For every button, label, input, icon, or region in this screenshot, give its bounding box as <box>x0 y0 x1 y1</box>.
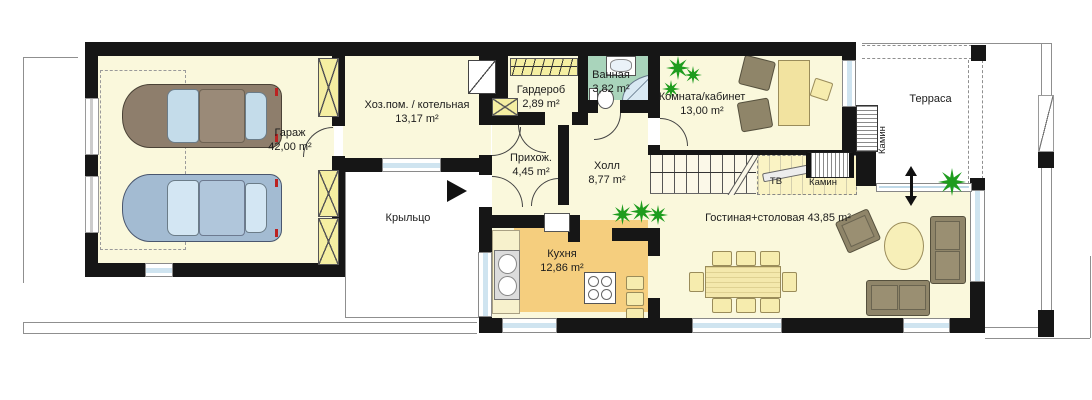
door-swing-arrow <box>904 166 918 206</box>
site-line-right <box>985 327 1038 328</box>
room-label-garage: Гараж 42,00 m² <box>240 126 340 155</box>
kitchen-sink <box>494 250 520 300</box>
porch-edge-left <box>345 170 346 318</box>
room-area: 12,86 m² <box>524 261 600 275</box>
car-taillight <box>275 179 278 187</box>
window-utility <box>382 158 441 172</box>
terrace-dashed-edge <box>968 60 969 184</box>
wall-kitchen-top <box>488 215 544 228</box>
room-area: 3,82 m² <box>582 82 640 96</box>
fireplace <box>806 152 854 178</box>
boiler <box>468 60 496 94</box>
room-area: 13,00 m² <box>656 104 748 118</box>
window-living-1 <box>692 318 782 333</box>
dining-chair <box>760 251 780 266</box>
terrace-dashed-edge <box>862 45 972 46</box>
entrance-arrow <box>447 180 467 202</box>
wall-bath-bottom <box>620 100 648 113</box>
vent-shaft <box>318 218 339 265</box>
dining-chair <box>760 298 780 313</box>
room-label-utility: Хоз.пом. / котельная 13,17 m² <box>352 98 482 127</box>
porch-edge-bottom <box>345 317 479 318</box>
dining-chair <box>736 251 756 266</box>
floor-plan: Гараж 42,00 m² Хоз.пом. / котельная 13,1… <box>0 0 1092 400</box>
plant-icon <box>684 66 702 84</box>
dining-chair <box>689 272 704 292</box>
cushion <box>899 285 926 310</box>
dining-chair <box>782 272 797 292</box>
chimney-label: Камин <box>877 126 888 154</box>
vent-shaft <box>318 58 339 117</box>
wall-garage-left <box>85 56 98 277</box>
terrace-top-line <box>862 43 1052 44</box>
car-taillight <box>275 88 278 96</box>
room-area: 4,45 m² <box>494 165 568 179</box>
room-area: 42,00 m² <box>240 140 340 154</box>
room-area: 2,89 m² <box>504 97 578 111</box>
room-name: Гараж <box>240 126 340 140</box>
room-area: 43,85 m² <box>807 212 850 224</box>
terrace-edge <box>1051 44 1052 95</box>
arrow-down <box>905 196 917 206</box>
plant-icon <box>938 168 966 196</box>
burner <box>601 289 612 300</box>
terrace-edge <box>1041 44 1042 95</box>
plant-icon <box>648 205 668 225</box>
room-name: Ванная <box>582 68 640 82</box>
room-name: Гостиная+столовая <box>705 212 804 224</box>
sofa-bottom <box>866 280 930 316</box>
fridge <box>544 213 570 232</box>
sink-basin <box>498 276 517 296</box>
sofa-right <box>930 216 966 284</box>
site-boundary-right <box>1090 256 1091 338</box>
site-boundary-left <box>23 57 24 283</box>
room-name: Терраса <box>909 93 951 105</box>
room-name: Крыльцо <box>386 212 431 224</box>
wall-entry-left <box>479 155 492 175</box>
burner <box>588 276 599 287</box>
cushion <box>935 221 960 250</box>
dining-chair <box>712 251 732 266</box>
room-name: Комната/кабинет <box>656 90 748 104</box>
room-label-porch: Крыльцо <box>368 212 448 224</box>
room-label-wardrobe: Гардероб 2,89 m² <box>504 83 578 112</box>
cushion <box>871 285 898 310</box>
wall-office-right <box>842 42 856 60</box>
car-roof <box>199 89 245 143</box>
room-label-kitchen: Кухня 12,86 m² <box>524 247 600 276</box>
cushion <box>935 251 960 280</box>
room-name: Кухня <box>524 247 600 261</box>
burner <box>601 276 612 287</box>
tv-label: ТВ <box>770 176 782 187</box>
walkway-cap <box>23 322 24 333</box>
car-rear-glass <box>245 183 267 233</box>
terrace-column <box>1038 310 1054 337</box>
garage-gate <box>85 176 99 233</box>
wall-garage-bottom <box>85 263 345 277</box>
car-taillight <box>275 229 278 237</box>
terrace-edge <box>1041 168 1042 310</box>
window-living-right <box>970 190 985 282</box>
room-label-entry: Прихож. 4,45 m² <box>494 151 568 180</box>
site-boundary-top-left <box>23 57 78 58</box>
dining-chair <box>736 298 756 313</box>
terrace-column <box>971 45 986 61</box>
dining-table <box>705 266 781 298</box>
site-line-right <box>985 338 1090 339</box>
wall-chimney-stub <box>856 150 876 186</box>
room-label-hall: Холл 8,77 m² <box>570 159 644 188</box>
room-name: Гардероб <box>504 83 578 97</box>
walkway-line <box>23 333 477 334</box>
burner <box>588 289 599 300</box>
wardrobe-rail <box>510 58 578 76</box>
terrace-column <box>1038 152 1054 168</box>
window-office <box>842 60 856 107</box>
chimney <box>856 105 878 152</box>
sink-basin <box>498 254 517 274</box>
room-name: Хоз.пом. / котельная <box>352 98 482 112</box>
window-kitchen <box>502 318 557 333</box>
room-label-terrace: Терраса <box>888 93 973 105</box>
window-living-2 <box>903 318 950 333</box>
terrace-edge <box>1051 168 1052 310</box>
dining-chair <box>712 298 732 313</box>
window-kitchen-side <box>478 252 492 317</box>
label-chimney: Камин <box>877 112 888 154</box>
terrace-dashed-edge <box>862 58 972 59</box>
terrace-dashed-edge <box>982 60 983 184</box>
room-label-living: Гостиная+столовая 43,85 m² <box>688 212 868 224</box>
label-fireplace: Камин <box>799 177 847 188</box>
bar-stool <box>626 276 644 290</box>
room-label-office: Комната/кабинет 13,00 m² <box>656 90 748 119</box>
wall-office-right <box>842 105 856 155</box>
stove <box>584 272 616 304</box>
room-name: Холл <box>570 159 644 173</box>
room-label-bathroom: Ванная 3,82 m² <box>582 68 640 97</box>
wall-top <box>85 42 856 56</box>
window-garage <box>145 263 173 277</box>
room-name: Прихож. <box>494 151 568 165</box>
car-windshield <box>167 89 199 143</box>
car-blue <box>122 174 282 242</box>
wall-bath-bottom <box>588 100 598 113</box>
wall-kitchen-right <box>648 228 660 256</box>
desk <box>778 60 810 126</box>
wall-kitchen-right <box>648 298 660 318</box>
wall-utility-bottom <box>438 158 479 172</box>
walkway-line <box>23 322 477 323</box>
garden-gate <box>1038 95 1054 152</box>
room-area: 13,17 m² <box>352 112 482 126</box>
wall-utility-bottom <box>345 158 382 172</box>
arrow-stem <box>910 174 913 198</box>
label-tv: ТВ <box>764 176 788 187</box>
car-windshield <box>167 180 199 236</box>
room-area: 8,77 m² <box>570 173 644 187</box>
wall-living-right <box>970 178 985 190</box>
garage-gate <box>85 98 99 155</box>
vent-shaft <box>318 170 339 217</box>
coffee-table <box>884 222 924 270</box>
wall-living-right <box>970 280 985 318</box>
car-roof <box>199 180 245 236</box>
fireplace-label: Камин <box>809 177 837 188</box>
bar-stool <box>626 292 644 306</box>
